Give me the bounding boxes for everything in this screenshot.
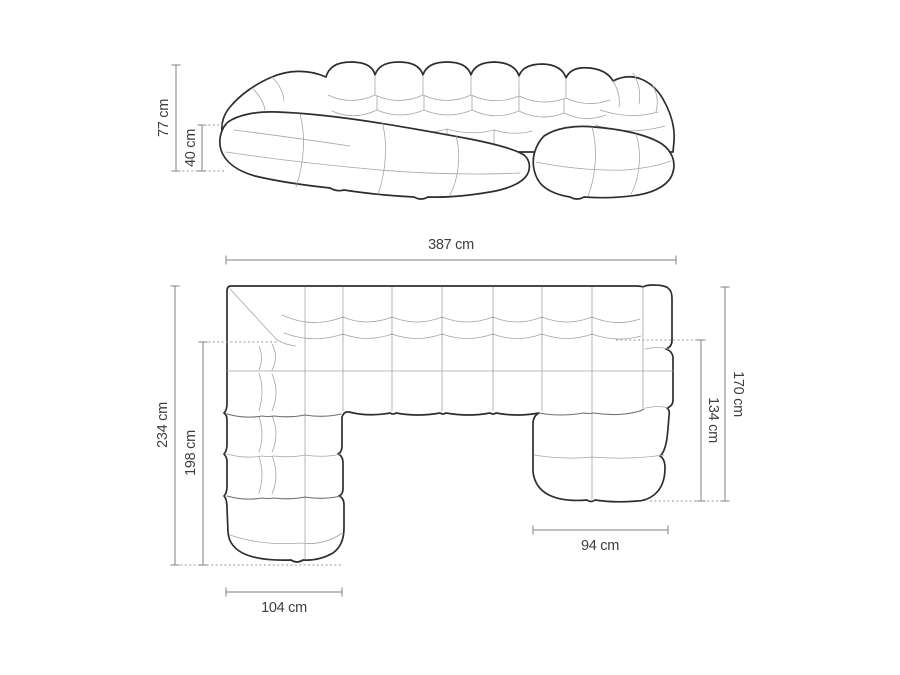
dimension-label: 134 cm — [705, 397, 721, 443]
dimension-line — [226, 588, 342, 597]
dimension-line — [533, 526, 668, 535]
front-elevation-view: 77 cm 40 cm — [156, 62, 674, 199]
top-plan-view: 387 cm 234 cm 198 cm 170 cm 134 cm 104 c… — [155, 237, 746, 616]
dimension-left-side-depth: 234 cm — [155, 286, 180, 565]
dimension-line — [171, 286, 180, 565]
dimension-label: 198 cm — [183, 430, 199, 476]
dimension-label: 387 cm — [428, 237, 474, 253]
dimension-left-chaise-width: 104 cm — [226, 588, 342, 617]
dimension-right-chaise-width: 94 cm — [533, 526, 668, 555]
dimension-left-inner-depth: 198 cm — [183, 342, 208, 565]
dimension-line — [226, 256, 676, 265]
sofa-dimension-diagram: 77 cm 40 cm 387 cm 234 cm 198 — [0, 0, 900, 675]
dimension-right-side-depth: 170 cm — [721, 287, 747, 501]
dimension-diagram-page: 77 cm 40 cm 387 cm 234 cm 198 — [0, 0, 900, 675]
dimension-label: 94 cm — [581, 538, 619, 554]
dimension-line — [697, 340, 706, 501]
dimension-label: 40 cm — [183, 129, 199, 167]
dimension-label: 77 cm — [156, 99, 172, 137]
dimension-right-inner-depth: 134 cm — [697, 340, 722, 501]
dimension-label: 170 cm — [730, 371, 746, 417]
dimension-label: 234 cm — [155, 402, 171, 448]
dimension-total-width: 387 cm — [226, 237, 676, 265]
dimension-line — [199, 342, 208, 565]
sofa-plan-outline — [224, 285, 673, 562]
dimension-line — [721, 287, 730, 501]
dimension-label: 104 cm — [261, 600, 307, 616]
dimension-line — [172, 65, 181, 171]
